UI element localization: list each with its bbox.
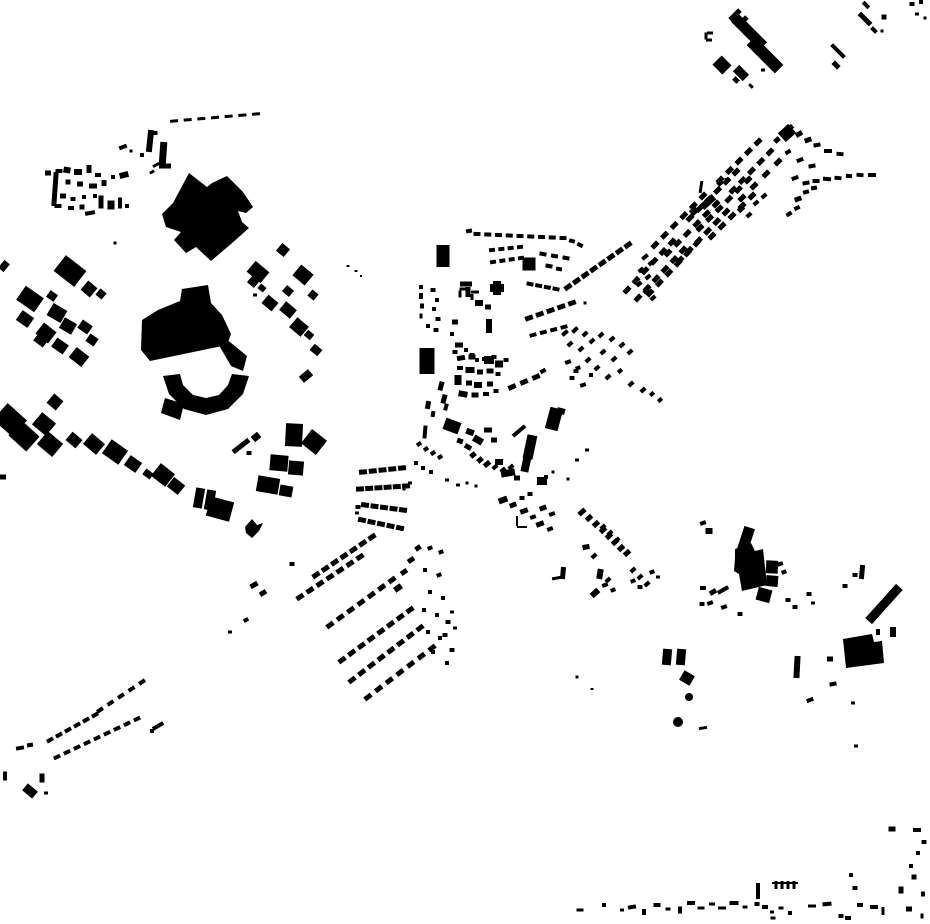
- building-footprint: [506, 233, 513, 237]
- building-footprint: [402, 483, 410, 489]
- building-footprint: [824, 149, 832, 153]
- building-footprint: [383, 484, 391, 490]
- building-footprint: [870, 905, 878, 909]
- building-footprint: [909, 864, 913, 868]
- building-footprint: [102, 180, 107, 186]
- building-footprint: [445, 479, 449, 482]
- building-footprint: [486, 319, 492, 333]
- building-footprint: [552, 471, 555, 474]
- building-footprint: [676, 649, 686, 666]
- building-footprint: [527, 234, 534, 238]
- building-footprint: [559, 236, 566, 240]
- building-footprint: [269, 454, 288, 472]
- building-footprint: [845, 916, 851, 920]
- building-footprint: [662, 649, 672, 666]
- building-footprint: [441, 596, 445, 600]
- building-footprint: [921, 914, 924, 919]
- building-footprint: [876, 629, 880, 635]
- building-footprint: [882, 15, 887, 20]
- building-footprint: [228, 631, 232, 634]
- building-footprint: [455, 343, 463, 348]
- building-footprint: [589, 373, 593, 377]
- building-footprint: [361, 502, 370, 508]
- building-footprint: [576, 676, 579, 679]
- building-footprint: [356, 486, 364, 492]
- building-footprint: [77, 182, 83, 187]
- building-footprint: [687, 901, 695, 905]
- building-footprint: [290, 562, 295, 566]
- map-svg: [0, 0, 930, 924]
- building-footprint: [507, 246, 513, 251]
- building-footprint: [567, 478, 570, 481]
- building-footprint: [808, 905, 816, 908]
- building-footprint: [793, 656, 800, 678]
- building-footprint: [253, 294, 257, 297]
- building-footprint: [108, 201, 115, 210]
- building-footprint: [857, 903, 863, 907]
- building-footprint: [450, 332, 454, 336]
- building-footprint: [453, 350, 458, 354]
- building-footprint: [466, 287, 471, 297]
- building-footprint: [380, 504, 389, 510]
- building-footprint: [87, 165, 92, 173]
- building-footprint: [700, 586, 706, 590]
- building-footprint: [426, 630, 430, 634]
- building-footprint: [793, 605, 798, 609]
- building-footprint: [489, 248, 495, 253]
- building-footprint: [881, 30, 884, 33]
- building-footprint: [140, 153, 144, 157]
- building-footprint: [398, 465, 406, 471]
- building-footprint-round: [673, 717, 683, 727]
- building-footprint: [706, 528, 713, 534]
- building-footprint: [438, 636, 442, 640]
- building-footprint: [813, 179, 820, 183]
- building-footprint: [718, 907, 726, 910]
- building-footprint: [854, 745, 858, 748]
- building-footprint: [44, 792, 48, 795]
- building-footprint: [538, 235, 545, 239]
- building-footprint: [504, 358, 509, 362]
- building-footprint: [496, 372, 501, 376]
- building-footprint: [422, 608, 426, 612]
- building-footprint: [707, 32, 713, 35]
- building-footprint: [80, 205, 85, 210]
- building-footprint: [60, 194, 66, 199]
- building-footprint: [495, 361, 503, 368]
- building-footprint: [516, 234, 523, 238]
- building-footprint: [452, 320, 458, 325]
- building-footprint: [836, 152, 843, 157]
- building-footprint: [584, 302, 587, 305]
- building-footprint: [414, 461, 418, 465]
- building-footprint: [460, 282, 472, 287]
- building-footprint: [125, 204, 129, 208]
- building-footprint: [421, 466, 425, 470]
- building-footprint: [915, 13, 919, 16]
- building-footprint: [95, 173, 101, 177]
- building-footprint: [66, 180, 71, 185]
- building-footprint: [591, 688, 594, 690]
- building-footprint: [743, 906, 748, 909]
- building-footprint: [399, 507, 408, 513]
- building-footprint: [40, 774, 45, 783]
- building-footprint: [756, 883, 760, 899]
- building-footprint: [471, 294, 474, 300]
- building-footprint: [549, 235, 556, 239]
- building-footprint: [517, 526, 527, 528]
- building-footprint: [475, 300, 483, 306]
- building-footprint: [482, 357, 488, 361]
- building-footprint: [355, 270, 358, 272]
- building-footprint: [360, 275, 362, 277]
- building-footprint: [93, 194, 97, 198]
- building-footprint: [523, 258, 536, 271]
- building-footprint: [56, 169, 63, 173]
- building-footprint: [419, 293, 423, 299]
- building-footprint: [45, 171, 51, 176]
- building-footprint: [491, 438, 497, 443]
- building-footprint: [487, 369, 494, 374]
- building-footprint: [426, 324, 430, 328]
- building-footprint: [150, 729, 154, 733]
- building-footprint: [811, 602, 815, 605]
- building-footprint: [432, 307, 436, 311]
- building-footprint: [755, 902, 760, 906]
- building-footprint: [856, 173, 863, 178]
- building-footprint: [55, 204, 62, 208]
- building-footprint: [921, 892, 925, 897]
- building-footprint: [466, 367, 475, 373]
- building-footprint: [638, 585, 643, 589]
- building-footprint: [919, 0, 923, 4]
- building-footprint: [913, 828, 921, 832]
- building-footprint: [423, 568, 427, 572]
- building-footprint: [807, 592, 812, 596]
- building-footprint: [788, 911, 792, 915]
- building-footprint: [159, 164, 171, 169]
- building-footprint: [464, 348, 468, 352]
- building-footprint: [455, 375, 462, 385]
- building-footprint: [922, 840, 927, 844]
- building-footprint: [700, 602, 705, 606]
- building-footprint: [770, 911, 774, 914]
- building-footprint: [475, 358, 479, 362]
- building-footprint: [374, 485, 382, 491]
- building-footprint: [437, 245, 450, 267]
- building-footprint: [730, 901, 739, 905]
- building-footprint: [620, 909, 624, 912]
- building-footprint: [678, 907, 682, 914]
- building-footprint: [288, 460, 304, 475]
- building-footprint: [575, 459, 579, 462]
- building-footprint: [443, 633, 448, 637]
- building-footprint: [445, 661, 449, 665]
- building-footprint: [114, 242, 117, 245]
- building-footprint: [68, 206, 74, 210]
- building-footprint: [517, 245, 523, 250]
- building-footprint: [485, 305, 491, 310]
- building-footprint: [772, 882, 798, 884]
- building-footprint: [916, 851, 920, 855]
- building-footprint: [3, 772, 7, 781]
- building-footprint: [487, 382, 493, 387]
- building-footprint: [906, 907, 912, 912]
- building-footprint: [347, 265, 350, 267]
- building-footprint: [370, 503, 379, 509]
- building-footprint: [851, 702, 855, 705]
- building-footprint: [389, 506, 398, 512]
- building-footprint: [356, 505, 361, 509]
- building-footprint: [889, 827, 896, 832]
- building-footprint: [459, 291, 462, 298]
- building-footprint: [435, 298, 439, 302]
- building-footprint: [585, 449, 589, 452]
- building-footprint: [388, 466, 396, 472]
- building-footprint: [762, 905, 768, 909]
- building-footprint: [846, 174, 852, 179]
- figure-ground-map: [0, 0, 930, 924]
- building-footprint: [490, 284, 504, 292]
- building-footprint: [466, 482, 469, 485]
- building-footprint: [698, 907, 705, 910]
- building-footprint: [469, 355, 476, 360]
- building-footprint: [709, 903, 715, 906]
- building-footprint: [499, 258, 506, 263]
- building-footprint: [483, 392, 489, 396]
- building-footprint: [453, 627, 457, 630]
- building-footprint: [471, 291, 479, 294]
- building-footprint: [738, 612, 743, 616]
- building-footprint: [456, 484, 460, 487]
- building-footprint: [786, 598, 791, 602]
- building-footprint: [705, 33, 708, 40]
- building-footprint: [834, 176, 841, 181]
- building-footprint: [365, 486, 373, 492]
- building-footprint: [882, 907, 885, 915]
- building-footprint: [434, 328, 439, 332]
- building-footprint: [279, 484, 294, 497]
- building-footprint: [473, 232, 480, 236]
- building-footprint: [910, 2, 915, 6]
- building-footprint-round: [685, 693, 693, 701]
- building-footprint: [431, 288, 436, 292]
- building-footprint: [666, 908, 671, 911]
- building-footprint: [766, 575, 779, 587]
- building-footprint: [71, 197, 76, 201]
- building-footprint: [99, 196, 104, 209]
- building-footprint: [537, 477, 547, 485]
- building-footprint: [912, 875, 917, 880]
- building-footprint: [494, 389, 499, 393]
- building-footprint: [823, 177, 831, 182]
- building-footprint: [899, 887, 904, 894]
- building-footprint: [868, 173, 876, 177]
- building-footprint: [130, 150, 133, 153]
- building-footprint: [428, 590, 432, 594]
- building-footprint: [429, 470, 433, 474]
- building-footprint: [508, 257, 515, 262]
- building-footprint: [355, 512, 359, 515]
- building-footprint: [420, 314, 423, 319]
- building-footprint: [457, 366, 463, 370]
- building-footprint: [285, 423, 303, 447]
- building-footprint: [656, 576, 660, 579]
- building-footprint: [843, 584, 848, 588]
- building-footprint: [771, 917, 776, 920]
- building-footprint: [0, 475, 6, 480]
- building-footprint: [577, 909, 584, 912]
- building-footprint: [827, 657, 833, 662]
- building-footprint: [516, 516, 518, 526]
- building-footprint: [642, 909, 646, 915]
- building-footprint: [654, 903, 661, 907]
- building-footprint: [474, 382, 482, 388]
- building-footprint: [475, 485, 478, 488]
- building-footprint: [82, 195, 86, 199]
- building-footprint: [766, 560, 779, 574]
- building-footprint: [420, 348, 435, 374]
- building-footprint: [528, 492, 533, 496]
- building-footprint: [111, 175, 115, 179]
- building-footprint: [839, 914, 844, 918]
- building-footprint: [761, 69, 765, 72]
- building-footprint: [369, 468, 377, 474]
- building-footprint: [570, 376, 575, 380]
- building-footprint: [393, 484, 401, 490]
- building-footprint: [436, 317, 441, 321]
- building-footprint: [779, 907, 784, 910]
- building-footprint: [63, 166, 71, 173]
- building-footprint: [924, 17, 927, 20]
- building-footprint: [466, 381, 472, 386]
- building-footprint: [495, 233, 502, 237]
- building-footprint: [520, 496, 525, 500]
- building-footprint: [890, 627, 896, 637]
- building-footprint: [419, 285, 423, 289]
- building-footprint: [822, 902, 831, 907]
- building-footprint: [490, 260, 497, 265]
- building-footprint: [495, 459, 503, 465]
- building-footprint: [153, 131, 158, 135]
- building-footprint: [853, 573, 858, 577]
- building-footprint: [247, 451, 252, 455]
- building-footprint: [89, 184, 97, 189]
- building-footprint: [484, 428, 492, 433]
- building-footprint: [849, 873, 853, 877]
- building-footprint: [450, 648, 455, 652]
- building-footprint: [518, 256, 525, 261]
- building-footprint: [420, 304, 424, 309]
- building-footprint: [853, 886, 858, 890]
- building-footprint: [74, 169, 82, 175]
- building-footprint: [477, 370, 483, 375]
- building-footprint: [359, 469, 367, 475]
- building-footprint: [446, 620, 451, 624]
- building-footprint: [602, 903, 606, 907]
- building-footprint: [435, 613, 439, 617]
- building-footprint: [472, 393, 479, 398]
- building-footprint: [450, 611, 454, 614]
- building-footprint: [492, 355, 497, 359]
- building-footprint: [484, 232, 491, 236]
- building-footprint: [498, 247, 504, 252]
- building-footprint: [118, 198, 122, 209]
- building-footprint: [514, 476, 520, 481]
- building-footprint: [378, 467, 386, 473]
